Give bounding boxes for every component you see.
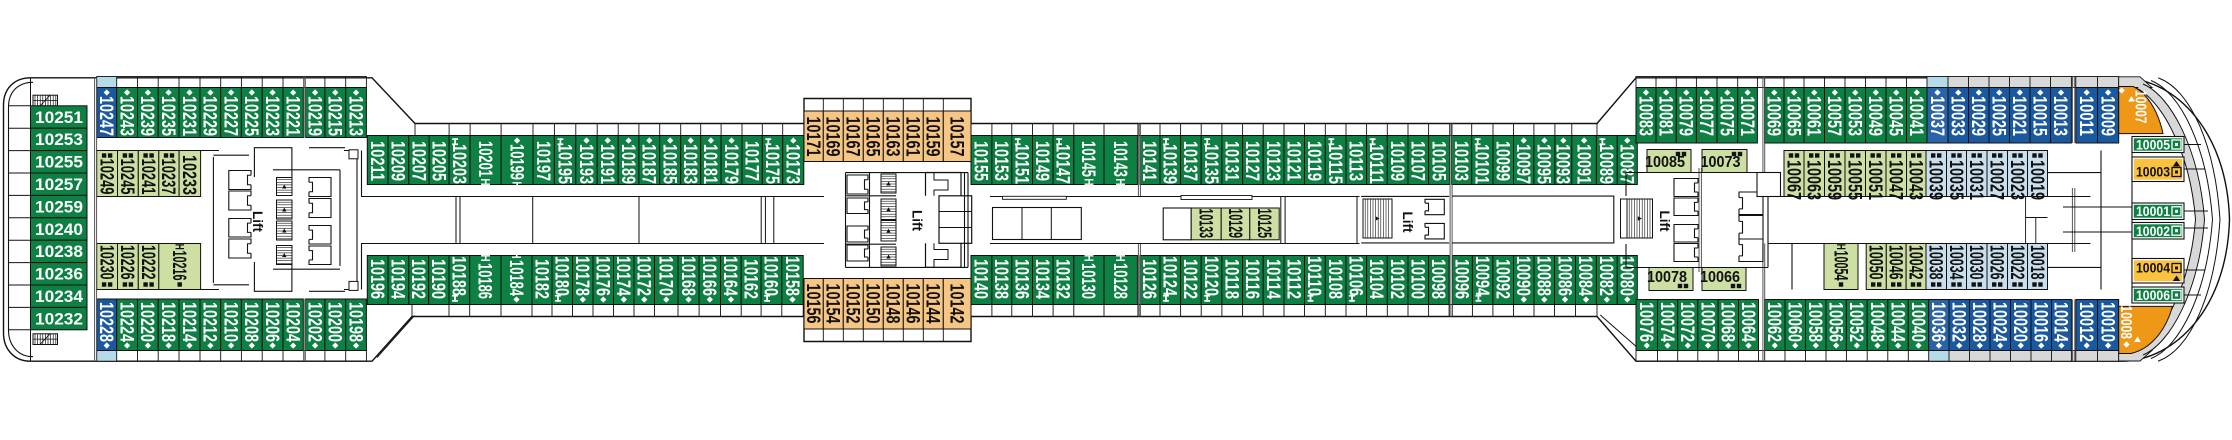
svg-text:10144: 10144: [922, 284, 944, 324]
svg-text:10111: 10111: [1365, 144, 1387, 184]
svg-text:10061: 10061: [1803, 96, 1825, 136]
svg-text:10198: 10198: [344, 302, 366, 342]
svg-text:10202: 10202: [303, 302, 325, 342]
svg-text:10084: 10084: [1574, 256, 1596, 296]
svg-text:10127: 10127: [1241, 141, 1263, 181]
svg-text:10230: 10230: [95, 245, 117, 280]
svg-text:10016: 10016: [2030, 302, 2052, 342]
svg-text:10210: 10210: [219, 302, 241, 342]
svg-text:10002: 10002: [2136, 223, 2170, 239]
svg-text:10029: 10029: [1967, 96, 1989, 136]
svg-text:10136: 10136: [1010, 259, 1032, 299]
svg-text:10007: 10007: [2132, 90, 2149, 124]
svg-text:10174: 10174: [612, 256, 634, 296]
svg-text:10069: 10069: [1763, 96, 1785, 136]
svg-text:10100: 10100: [1407, 259, 1429, 299]
svg-text:10053: 10053: [1844, 96, 1866, 136]
svg-text:10080: 10080: [1616, 256, 1638, 296]
svg-text:10024: 10024: [1989, 302, 2011, 342]
svg-text:10023: 10023: [2006, 160, 2028, 200]
svg-text:10044: 10044: [1886, 302, 1908, 342]
svg-text:10197: 10197: [532, 141, 554, 181]
svg-text:10039: 10039: [1925, 160, 1947, 200]
svg-text:10238: 10238: [35, 242, 83, 261]
svg-text:10041: 10041: [1905, 96, 1927, 136]
svg-text:10165: 10165: [862, 117, 884, 157]
svg-text:10068: 10068: [1717, 302, 1739, 342]
svg-text:10077: 10077: [1695, 96, 1717, 136]
svg-text:10169: 10169: [822, 117, 844, 157]
svg-text:10180: 10180: [551, 256, 573, 296]
svg-text:10070: 10070: [1696, 302, 1718, 342]
svg-text:10090: 10090: [1512, 256, 1534, 296]
svg-text:10184: 10184: [505, 260, 527, 296]
svg-text:10222: 10222: [137, 245, 159, 280]
svg-text:10133: 10133: [1195, 209, 1216, 239]
svg-text:10138: 10138: [990, 259, 1012, 299]
svg-text:10020: 10020: [2009, 302, 2031, 342]
svg-text:10106: 10106: [1345, 256, 1367, 296]
svg-text:10145: 10145: [1077, 141, 1099, 177]
svg-text:10008: 10008: [2117, 306, 2134, 340]
svg-text:Lift: Lift: [1400, 212, 1415, 233]
svg-text:10129: 10129: [1224, 209, 1245, 239]
svg-text:10191: 10191: [596, 144, 618, 184]
svg-text:10094: 10094: [1471, 256, 1493, 296]
svg-text:10060: 10060: [1784, 302, 1806, 342]
svg-text:10251: 10251: [35, 108, 83, 127]
svg-text:10142: 10142: [945, 284, 967, 324]
svg-text:10018: 10018: [2026, 245, 2048, 280]
svg-text:10236: 10236: [35, 265, 83, 284]
svg-text:10107: 10107: [1407, 141, 1429, 181]
svg-text:10231: 10231: [178, 96, 200, 136]
svg-text:10087: 10087: [1616, 144, 1638, 184]
svg-text:10092: 10092: [1492, 259, 1514, 299]
svg-text:10196: 10196: [366, 259, 388, 299]
svg-text:10146: 10146: [902, 284, 924, 324]
svg-text:10134: 10134: [1031, 259, 1053, 299]
svg-text:10062: 10062: [1763, 302, 1785, 342]
svg-text:10218: 10218: [157, 302, 179, 342]
svg-text:10101: 10101: [1471, 144, 1493, 184]
svg-text:10063: 10063: [1803, 160, 1825, 200]
svg-text:10178: 10178: [571, 256, 593, 296]
svg-text:10108: 10108: [1324, 259, 1346, 299]
svg-text:10183: 10183: [679, 144, 701, 184]
svg-text:10122: 10122: [1179, 259, 1201, 299]
svg-text:10098: 10098: [1427, 259, 1449, 299]
svg-text:10012: 10012: [2075, 302, 2097, 342]
svg-text:10176: 10176: [592, 256, 614, 296]
svg-text:10109: 10109: [1386, 141, 1408, 181]
svg-text:10245: 10245: [116, 159, 138, 195]
svg-text:10102: 10102: [1386, 259, 1408, 299]
svg-text:10162: 10162: [739, 259, 761, 299]
svg-text:10200: 10200: [324, 302, 346, 342]
svg-text:10172: 10172: [633, 256, 655, 296]
svg-text:10083: 10083: [1634, 96, 1656, 136]
svg-text:10179: 10179: [720, 144, 742, 184]
svg-text:10239: 10239: [136, 96, 158, 136]
svg-text:H: H: [510, 182, 525, 189]
svg-text:10003: 10003: [2136, 164, 2170, 180]
svg-text:10195: 10195: [553, 144, 575, 184]
svg-text:10093: 10093: [1552, 144, 1574, 184]
svg-text:10032: 10032: [1948, 302, 1970, 342]
svg-text:10166: 10166: [698, 256, 720, 296]
svg-text:10259: 10259: [35, 197, 83, 216]
svg-text:10076: 10076: [1635, 302, 1657, 342]
svg-text:10186: 10186: [474, 263, 496, 299]
svg-text:H: H: [1834, 244, 1848, 250]
svg-text:10115: 10115: [1324, 144, 1346, 184]
svg-text:10185: 10185: [659, 144, 681, 184]
svg-text:10112: 10112: [1283, 259, 1305, 299]
svg-text:10095: 10095: [1533, 144, 1555, 184]
svg-text:10011: 10011: [2075, 96, 2097, 136]
svg-text:10171: 10171: [802, 117, 824, 157]
svg-text:10148: 10148: [882, 284, 904, 324]
svg-text:10257: 10257: [35, 175, 83, 194]
svg-text:Lift: Lift: [910, 210, 925, 231]
svg-text:10116: 10116: [1241, 259, 1263, 299]
svg-text:10177: 10177: [740, 141, 762, 181]
svg-text:10140: 10140: [970, 259, 992, 299]
svg-text:10160: 10160: [760, 256, 782, 296]
svg-text:10232: 10232: [35, 309, 83, 328]
svg-text:10199: 10199: [505, 144, 527, 180]
svg-text:10057: 10057: [1823, 96, 1845, 136]
svg-text:10234: 10234: [35, 287, 84, 306]
svg-text:10043: 10043: [1905, 160, 1927, 200]
svg-text:10046: 10046: [1885, 245, 1907, 280]
svg-text:10082: 10082: [1595, 256, 1617, 296]
svg-text:10074: 10074: [1656, 302, 1678, 342]
svg-text:10065: 10065: [1782, 96, 1804, 136]
svg-text:10047: 10047: [1885, 160, 1907, 200]
svg-text:10212: 10212: [199, 302, 221, 342]
svg-text:10243: 10243: [115, 96, 137, 136]
svg-text:10143: 10143: [1109, 141, 1131, 177]
svg-text:10040: 10040: [1907, 302, 1929, 342]
svg-text:H: H: [173, 244, 187, 250]
svg-text:10072: 10072: [1676, 302, 1698, 342]
svg-text:10067: 10067: [1782, 160, 1804, 200]
svg-text:10104: 10104: [1365, 259, 1387, 299]
svg-text:10113: 10113: [1345, 141, 1367, 181]
svg-text:10153: 10153: [990, 141, 1012, 181]
svg-text:H: H: [1113, 255, 1128, 262]
svg-text:10137: 10137: [1179, 141, 1201, 181]
svg-text:10175: 10175: [761, 144, 783, 184]
svg-text:10167: 10167: [842, 117, 864, 157]
svg-text:10071: 10071: [1736, 96, 1758, 136]
svg-text:10240: 10240: [35, 220, 83, 239]
svg-text:10052: 10052: [1845, 302, 1867, 342]
svg-text:10009: 10009: [2096, 96, 2118, 136]
svg-text:10152: 10152: [842, 284, 864, 324]
svg-text:10131: 10131: [1221, 141, 1243, 181]
svg-text:10225: 10225: [240, 96, 262, 136]
svg-text:10219: 10219: [303, 96, 325, 136]
svg-text:10015: 10015: [2029, 96, 2051, 136]
svg-text:10168: 10168: [677, 256, 699, 296]
svg-text:10187: 10187: [638, 144, 660, 184]
svg-text:10006: 10006: [2136, 287, 2170, 303]
svg-text:10086: 10086: [1553, 256, 1575, 296]
svg-text:10157: 10157: [945, 117, 967, 157]
svg-text:10206: 10206: [261, 302, 283, 342]
svg-text:10224: 10224: [115, 302, 137, 342]
svg-text:10141: 10141: [1138, 141, 1160, 181]
svg-text:10170: 10170: [655, 256, 677, 296]
svg-text:10211: 10211: [366, 141, 388, 181]
svg-text:10205: 10205: [427, 141, 449, 181]
svg-text:10128: 10128: [1109, 263, 1131, 299]
svg-text:10014: 10014: [2050, 302, 2072, 342]
svg-text:10001: 10001: [2136, 203, 2170, 219]
svg-text:10192: 10192: [407, 259, 429, 299]
svg-text:H: H: [478, 255, 493, 262]
svg-text:10056: 10056: [1825, 302, 1847, 342]
svg-text:10096: 10096: [1451, 259, 1473, 299]
svg-text:10030: 10030: [1965, 245, 1987, 280]
svg-text:10048: 10048: [1866, 302, 1888, 342]
svg-text:10253: 10253: [35, 130, 83, 149]
svg-text:10155: 10155: [970, 141, 992, 181]
svg-text:10089: 10089: [1595, 144, 1617, 184]
svg-text:10013: 10013: [2049, 96, 2071, 136]
svg-text:10120: 10120: [1200, 256, 1222, 296]
svg-text:10004: 10004: [2136, 260, 2170, 276]
svg-text:H: H: [1081, 255, 1096, 262]
svg-text:H: H: [1081, 179, 1096, 186]
svg-text:10099: 10099: [1492, 141, 1514, 181]
svg-text:10055: 10055: [1844, 160, 1866, 200]
svg-text:10005: 10005: [2136, 137, 2170, 153]
svg-text:10139: 10139: [1159, 144, 1181, 184]
svg-text:10182: 10182: [530, 259, 552, 299]
svg-text:10220: 10220: [136, 302, 158, 342]
svg-text:10214: 10214: [178, 302, 200, 342]
svg-text:10216: 10216: [168, 251, 190, 281]
svg-text:10066: 10066: [1700, 269, 1740, 286]
svg-text:10226: 10226: [116, 245, 138, 280]
svg-text:10227: 10227: [219, 96, 241, 136]
svg-text:10215: 10215: [324, 96, 346, 136]
svg-text:10163: 10163: [882, 117, 904, 157]
svg-text:10207: 10207: [407, 141, 429, 181]
svg-text:H: H: [478, 179, 493, 186]
svg-text:10237: 10237: [157, 159, 179, 195]
svg-text:H: H: [1113, 179, 1128, 186]
svg-text:10058: 10058: [1804, 302, 1826, 342]
svg-text:10241: 10241: [137, 159, 159, 195]
svg-text:10209: 10209: [387, 141, 409, 181]
svg-text:10035: 10035: [1945, 160, 1967, 200]
svg-text:10208: 10208: [240, 302, 262, 342]
svg-text:10150: 10150: [862, 284, 884, 324]
svg-text:10105: 10105: [1427, 141, 1449, 181]
svg-text:10233: 10233: [178, 155, 200, 195]
svg-text:10114: 10114: [1262, 259, 1284, 299]
svg-text:10149: 10149: [1031, 141, 1053, 181]
svg-text:10028: 10028: [1968, 302, 1990, 342]
svg-text:Lift: Lift: [1657, 211, 1672, 232]
svg-text:10132: 10132: [1052, 259, 1074, 299]
svg-text:H: H: [509, 252, 524, 259]
svg-text:10045: 10045: [1885, 96, 1907, 136]
svg-text:10038: 10038: [1925, 245, 1947, 280]
svg-text:10036: 10036: [1927, 302, 1949, 342]
svg-text:10228: 10228: [95, 302, 117, 342]
svg-text:Lift: Lift: [250, 211, 265, 232]
svg-text:10125: 10125: [1253, 209, 1274, 239]
svg-text:10126: 10126: [1138, 259, 1160, 299]
svg-text:10130: 10130: [1077, 263, 1099, 299]
svg-text:10235: 10235: [157, 96, 179, 136]
svg-text:10161: 10161: [902, 117, 924, 157]
svg-text:10147: 10147: [1052, 144, 1074, 184]
svg-text:10173: 10173: [782, 144, 804, 184]
svg-text:10223: 10223: [261, 96, 283, 136]
svg-text:10159: 10159: [922, 117, 944, 157]
svg-text:10181: 10181: [699, 144, 721, 184]
svg-text:10064: 10064: [1737, 302, 1759, 342]
svg-text:10027: 10027: [1986, 160, 2008, 200]
svg-text:10031: 10031: [1965, 160, 1987, 200]
svg-text:10151: 10151: [1010, 144, 1032, 184]
svg-text:10034: 10034: [1945, 245, 1967, 280]
svg-text:10204: 10204: [281, 302, 303, 342]
svg-text:10073: 10073: [1701, 154, 1741, 171]
svg-text:10164: 10164: [719, 256, 741, 296]
svg-text:10054: 10054: [1829, 251, 1851, 281]
svg-text:10026: 10026: [1986, 245, 2008, 280]
svg-text:10123: 10123: [1262, 141, 1284, 181]
svg-text:10188: 10188: [448, 256, 470, 296]
svg-text:10135: 10135: [1200, 144, 1222, 184]
svg-text:10249: 10249: [95, 159, 117, 195]
svg-text:10049: 10049: [1864, 96, 1886, 136]
svg-text:10121: 10121: [1283, 141, 1305, 181]
svg-text:10078: 10078: [1647, 269, 1687, 286]
svg-text:10037: 10037: [1926, 96, 1948, 136]
svg-text:10247: 10247: [95, 96, 117, 136]
svg-text:10091: 10091: [1572, 144, 1594, 184]
svg-text:10081: 10081: [1654, 96, 1676, 136]
svg-text:10118: 10118: [1221, 259, 1243, 299]
svg-text:10201: 10201: [474, 141, 496, 177]
svg-text:10025: 10025: [1988, 96, 2010, 136]
svg-text:10103: 10103: [1450, 141, 1472, 181]
svg-text:10059: 10059: [1823, 160, 1845, 200]
svg-text:10042: 10042: [1904, 245, 1926, 280]
svg-text:10255: 10255: [35, 153, 83, 172]
svg-text:10019: 10019: [2026, 160, 2048, 200]
svg-text:10097: 10097: [1512, 144, 1534, 184]
svg-text:10194: 10194: [387, 259, 409, 299]
svg-text:10156: 10156: [802, 284, 824, 324]
svg-text:10021: 10021: [2008, 96, 2030, 136]
svg-text:10050: 10050: [1865, 245, 1887, 280]
svg-text:10010: 10010: [2096, 302, 2118, 342]
svg-text:10190: 10190: [427, 259, 449, 299]
svg-text:10221: 10221: [281, 96, 303, 136]
svg-text:10213: 10213: [344, 96, 366, 136]
svg-text:10075: 10075: [1716, 96, 1738, 136]
svg-text:10051: 10051: [1864, 160, 1886, 200]
svg-text:10189: 10189: [617, 144, 639, 184]
svg-text:10158: 10158: [781, 256, 803, 296]
svg-text:10022: 10022: [2006, 245, 2028, 280]
svg-text:10193: 10193: [575, 144, 597, 184]
svg-text:10203: 10203: [448, 144, 470, 184]
svg-text:10124: 10124: [1159, 256, 1181, 296]
svg-text:10110: 10110: [1303, 256, 1325, 296]
svg-text:10119: 10119: [1303, 141, 1325, 181]
svg-text:10079: 10079: [1675, 96, 1697, 136]
svg-text:10085: 10085: [1645, 154, 1685, 171]
svg-text:10088: 10088: [1533, 256, 1555, 296]
svg-text:10154: 10154: [822, 284, 844, 324]
svg-text:10229: 10229: [199, 96, 221, 136]
svg-text:10033: 10033: [1947, 96, 1969, 136]
